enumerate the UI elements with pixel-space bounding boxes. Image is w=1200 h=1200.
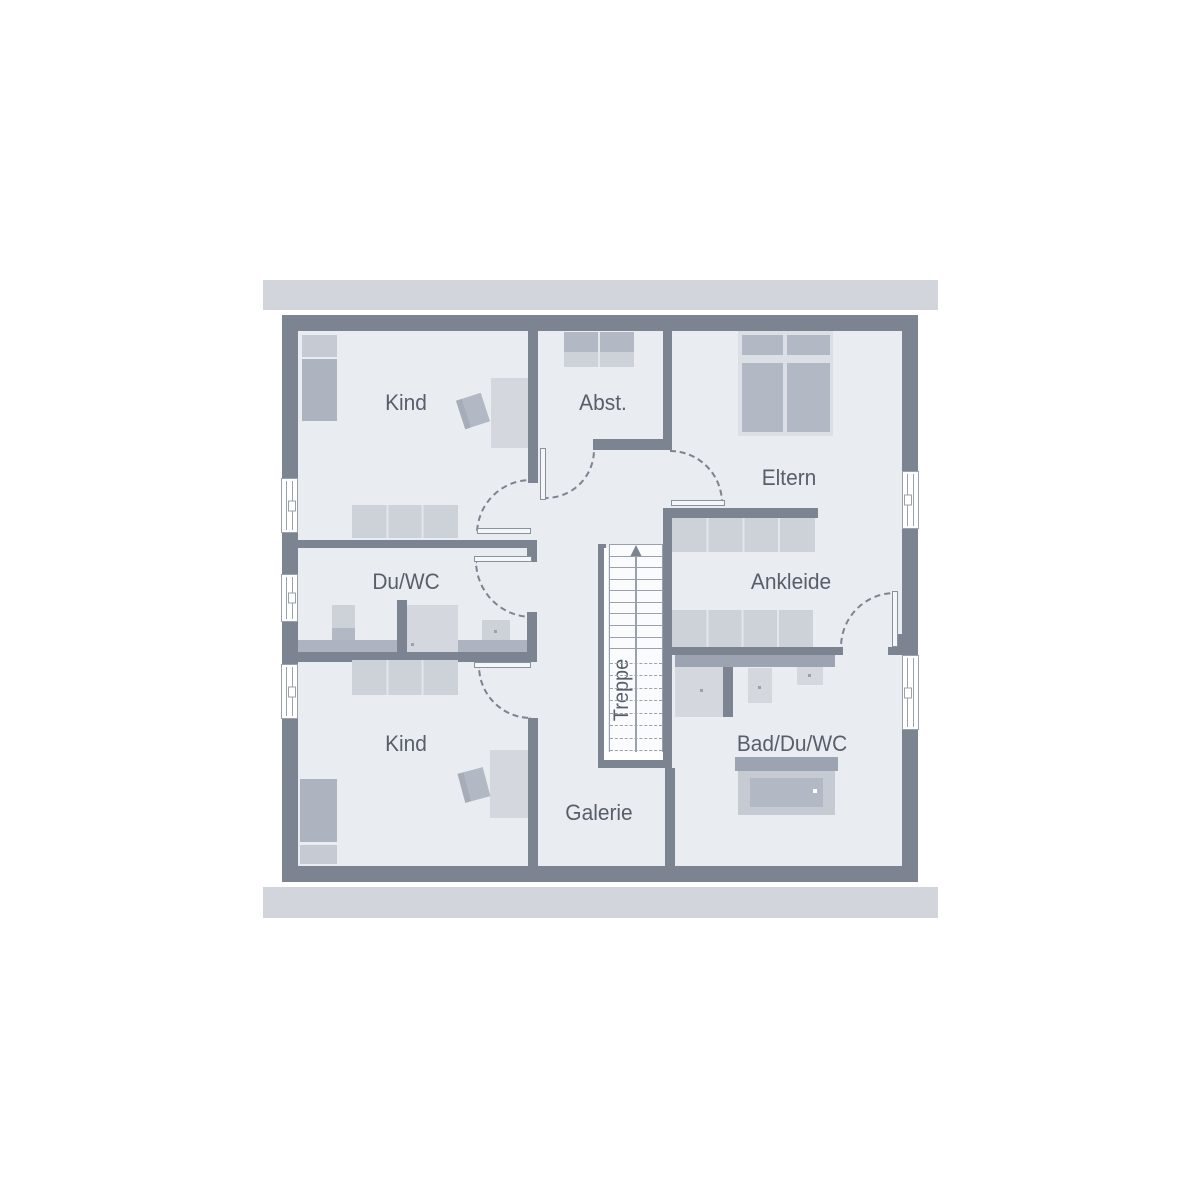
bed-eltern-mattress-left [742, 363, 783, 432]
wall-eltern-ankleide [672, 508, 818, 518]
roof-edge-top [263, 280, 938, 310]
cabinet-abst-top [564, 332, 634, 352]
stair-tread-line [610, 688, 662, 689]
fixture-dot [411, 643, 414, 646]
floor-plan-canvas: Kind Abst. Eltern Du/WC Ankleide Treppe … [0, 0, 1200, 1200]
wall-ankleide-bad [672, 647, 843, 655]
room-label-treppe: Treppe [610, 659, 634, 721]
door-leaf-kind1 [477, 528, 531, 534]
wall-outer-bottom [282, 866, 918, 882]
cabinet-abst-bottom [564, 352, 634, 367]
stair-tread-line [610, 738, 662, 739]
window-handle-icon [288, 500, 296, 511]
stairs-gap-bottom [604, 752, 663, 760]
wall-stairs-bottom [598, 760, 672, 768]
counter-duwc-left [298, 640, 397, 652]
wall-duwc-partition [397, 600, 407, 652]
door-leaf-bad [892, 591, 898, 647]
wall-abst-right [663, 331, 672, 450]
room-label-abstellraum: Abst. [579, 390, 627, 416]
wall-galerie-bad [665, 768, 675, 866]
room-label-galerie: Galerie [565, 800, 632, 826]
room-label-ankleide: Ankleide [751, 569, 831, 595]
bed-kind1 [302, 359, 337, 421]
shower-duwc [407, 605, 458, 652]
counter-duwc-right [458, 640, 527, 652]
door-leaf-duwc [474, 556, 532, 562]
bed-eltern-pillow-right [787, 335, 830, 355]
vanity-counter-bad [675, 655, 835, 667]
room-label-duwc: Du/WC [372, 569, 439, 595]
wall-ankleide-bad-right [888, 647, 902, 655]
stair-tread-line [610, 613, 662, 614]
stair-tread-line [610, 713, 662, 714]
stair-tread-line [610, 556, 662, 557]
room-label-kind2: Kind [385, 731, 427, 757]
toilet-duwc-tank [332, 605, 355, 628]
bathtub-header [735, 757, 838, 771]
toilet-duwc-base [332, 628, 355, 640]
stair-tread-line [610, 602, 662, 603]
fixture-dot [758, 686, 761, 689]
shower-bad [675, 667, 723, 717]
window-handle-icon [904, 687, 912, 698]
window-eltern [902, 471, 919, 529]
bed-eltern-pillow-left [742, 335, 783, 355]
desk-kind2 [490, 750, 528, 818]
wall-kind1-right [528, 331, 538, 483]
wall-outer-right [902, 315, 918, 882]
window-duwc [281, 574, 298, 622]
desk-kind1 [491, 378, 528, 448]
door-leaf-kind2 [474, 662, 531, 668]
fixture-dot [808, 674, 811, 677]
wall-abst-bottom [593, 439, 670, 450]
window-handle-icon [904, 495, 912, 506]
stair-tread-line [610, 579, 662, 580]
stair-tread-line [610, 648, 662, 649]
window-handle-icon [288, 593, 296, 604]
window-handle-icon [288, 686, 296, 697]
wardrobe-kind2 [352, 660, 458, 695]
room-label-kind1: Kind [385, 390, 427, 416]
stair-tread-line [610, 637, 662, 638]
window-kind1 [281, 478, 298, 533]
window-bad [902, 655, 919, 730]
stairs-direction-line [635, 556, 637, 760]
stair-tread-line [610, 625, 662, 626]
fixture-dot [494, 630, 497, 633]
door-leaf-abst [540, 448, 546, 500]
wall-galerie-kind2 [528, 718, 538, 866]
stair-tread-line [610, 663, 662, 664]
stair-tread-line [610, 725, 662, 726]
wardrobe-ankleide-mid [672, 610, 813, 647]
stairs-gap-left [604, 548, 608, 760]
stair-tread-line [610, 675, 662, 676]
stair-tread-line [610, 700, 662, 701]
wall-duwc-top [298, 540, 528, 548]
bed-kind2 [300, 779, 337, 842]
roof-edge-bottom [263, 887, 938, 918]
stair-tread-line [610, 750, 662, 751]
wall-outer-top [282, 315, 918, 331]
bathtub-drain [813, 789, 817, 793]
bed-eltern-mattress-right [787, 363, 830, 432]
bed-pillow-kind1 [302, 335, 337, 357]
fixture-dot [700, 689, 703, 692]
wardrobe-kind1 [352, 505, 458, 538]
stair-tread-line [610, 567, 662, 568]
door-leaf-eltern [671, 500, 725, 506]
room-label-eltern: Eltern [762, 465, 817, 491]
bed-pillow-kind2 [300, 845, 337, 864]
room-label-badduwc: Bad/Du/WC [737, 731, 847, 757]
window-kind2 [281, 664, 298, 719]
wardrobe-ankleide-top [672, 518, 815, 552]
wall-stairs-right [663, 508, 672, 768]
stair-tread-line [610, 590, 662, 591]
